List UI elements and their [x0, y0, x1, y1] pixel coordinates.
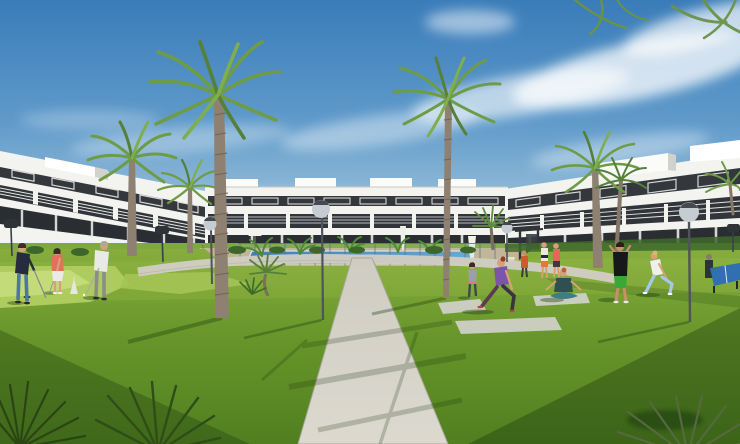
- architectural-render: [0, 0, 740, 444]
- center-balcony-row: [208, 214, 505, 228]
